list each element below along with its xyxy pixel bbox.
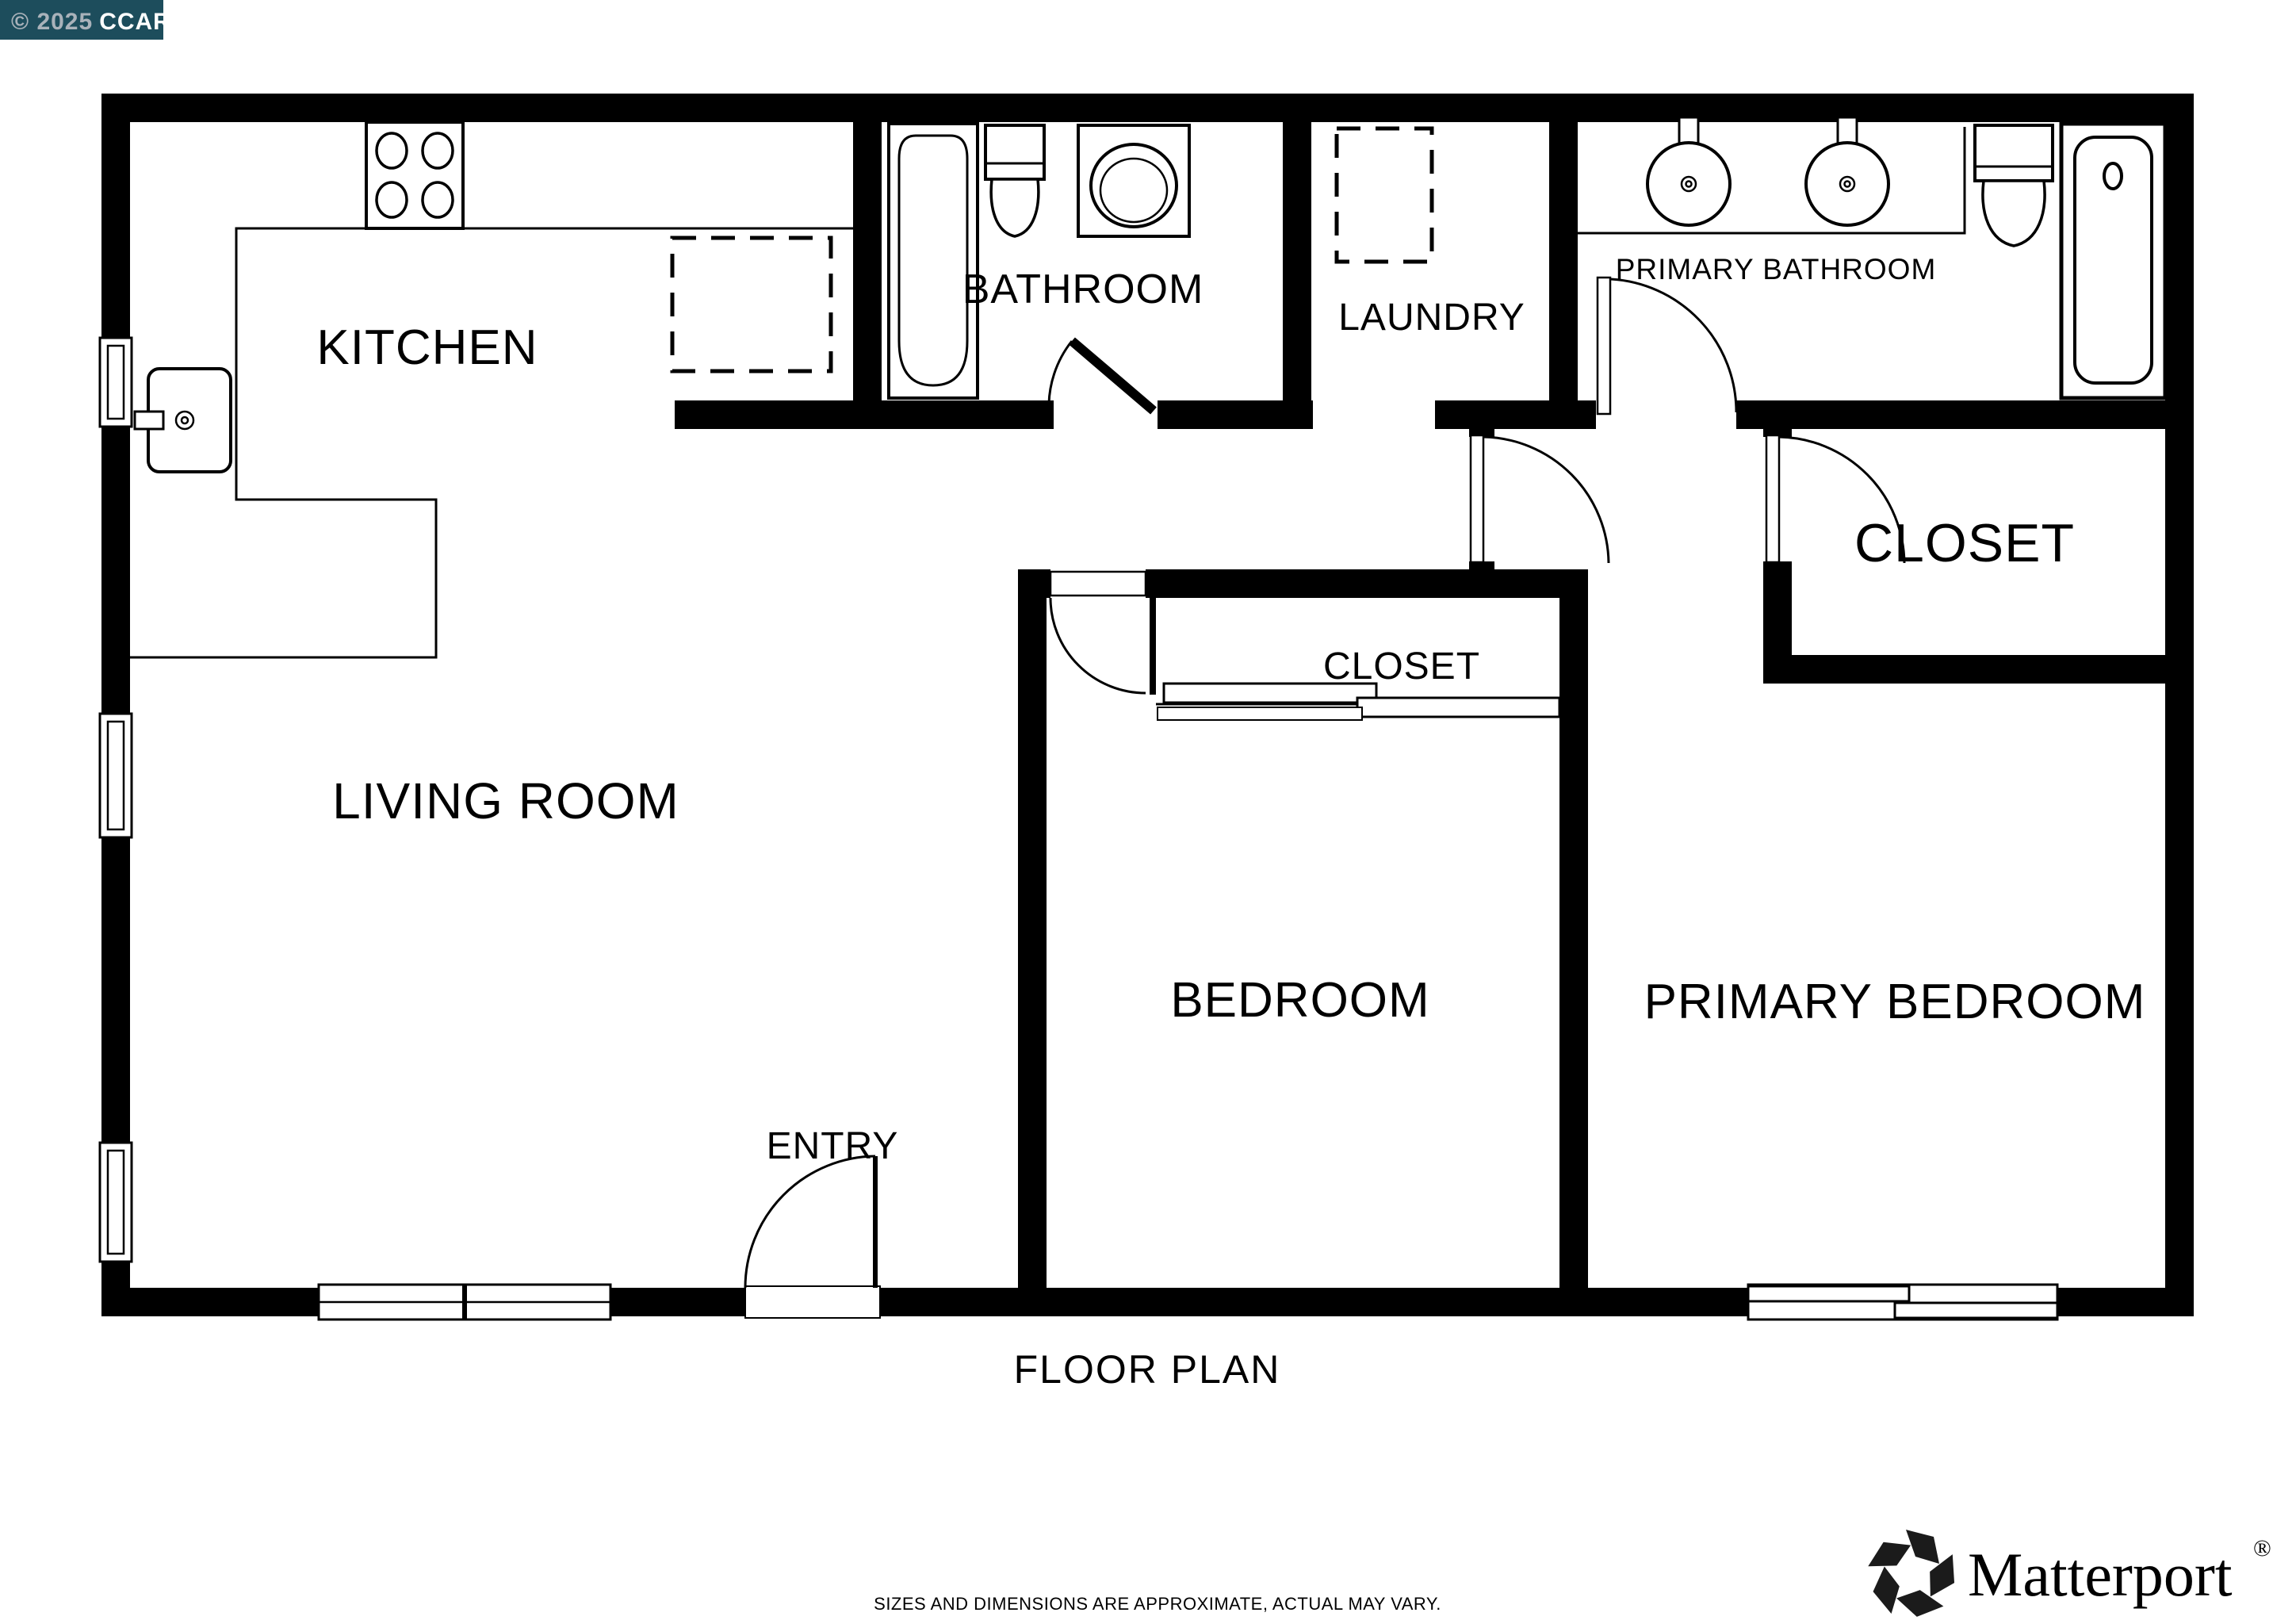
registered-trademark: ® <box>2253 1535 2271 1561</box>
closet-sliding-doors-icon <box>1156 684 1559 720</box>
living-room: LIVING ROOM ENTRY <box>319 772 898 1319</box>
wall-closet-bottom <box>1763 655 2194 684</box>
hall-door-arc <box>1483 437 1609 563</box>
vanity-counter <box>1578 127 1965 233</box>
bathtub-icon <box>889 124 978 398</box>
living-room-label: LIVING ROOM <box>332 772 679 829</box>
bedroom-door <box>1050 572 1146 693</box>
wall-bedroom-primary-divider <box>1559 569 1588 1288</box>
bathroom-door-leaf <box>1072 341 1154 411</box>
wall-laundry-bottom <box>1435 400 1596 429</box>
primary-bathroom-label: PRIMARY BATHROOM <box>1616 253 1937 285</box>
kitchen-sink-icon <box>135 369 231 472</box>
disclaimer-text: SIZES AND DIMENSIONS ARE APPROXIMATE, AC… <box>874 1594 1441 1614</box>
window-kitchen <box>100 338 132 427</box>
primary-bathroom-door-leaf <box>1598 278 1610 414</box>
laundry-label: LAUNDRY <box>1338 297 1525 339</box>
primary-sink-left-icon <box>1647 117 1730 225</box>
bathroom-door <box>1049 341 1154 411</box>
bedroom-door-leaf <box>1050 572 1146 596</box>
entry-door-arc <box>745 1156 875 1288</box>
bedroom-label: BEDROOM <box>1170 973 1429 1028</box>
wall-bathroom-bottom-right <box>1158 400 1313 429</box>
window-living-lower <box>100 1143 132 1262</box>
hall-door <box>1471 435 1609 563</box>
bedroom-door-arc <box>1050 598 1146 693</box>
hall-door-leaf <box>1471 435 1483 562</box>
living-room-window <box>319 1285 610 1319</box>
bedroom: CLOSET BEDROOM <box>1050 572 1559 1028</box>
wall-bathroom-laundry <box>1283 122 1311 429</box>
toilet-icon <box>985 125 1044 236</box>
primary-closet-label: CLOSET <box>1854 513 2075 573</box>
matterport-mark-icon <box>1865 1530 1963 1624</box>
wall-closet-door-stub-bottom <box>1763 561 1792 655</box>
washer-dryer-icon <box>1337 128 1432 262</box>
matterport-wordmark: Matterport <box>1968 1540 2233 1609</box>
primary-bedroom: PRIMARY BEDROOM <box>1644 975 2146 1319</box>
primary-bathroom-door <box>1598 278 1736 414</box>
wall-laundry-primary-bath <box>1549 122 1578 429</box>
kitchen: KITCHEN <box>130 122 853 657</box>
matterport-logo: Matterport ® <box>1865 1530 2271 1624</box>
floor-plan-page: KITCHEN BATHROOM LAUNDRY <box>0 0 2296 1624</box>
bathroom: BATHROOM <box>889 124 1203 411</box>
entry-label: ENTRY <box>767 1125 899 1167</box>
shower-icon <box>2061 124 2165 398</box>
entry-door-opening <box>745 1286 880 1318</box>
bathroom-door-arc <box>1049 341 1072 411</box>
badge-text: © 2025CCAR <box>11 9 171 35</box>
wall-bedroom-left <box>1018 569 1047 1288</box>
bathroom-sink-icon <box>1078 125 1189 236</box>
stove-icon <box>366 122 463 228</box>
primary-closet: CLOSET <box>1766 435 2075 573</box>
ccar-badge: © 2025CCAR <box>0 0 171 40</box>
exterior-wall-right <box>2165 94 2194 1316</box>
kitchen-label: KITCHEN <box>316 320 538 375</box>
laundry: LAUNDRY <box>1337 128 1525 339</box>
wall-bathroom-left <box>853 122 882 429</box>
wall-bedroom-closet-left <box>1150 598 1156 695</box>
entry-door <box>745 1156 880 1318</box>
primary-closet-door-leaf <box>1766 435 1779 562</box>
laundry-opening <box>1313 399 1435 431</box>
primary-sink-right-icon <box>1806 117 1888 225</box>
primary-bedroom-window <box>1748 1285 2057 1319</box>
kitchen-counter-outline <box>130 228 853 657</box>
bedroom-closet-label: CLOSET <box>1323 645 1480 688</box>
exterior-wall-top <box>101 94 2194 122</box>
wall-primary-bath-bottom <box>1736 400 2194 429</box>
dishwasher-icon <box>672 238 831 371</box>
floor-plan-title: FLOOR PLAN <box>1014 1347 1281 1392</box>
primary-bathroom-door-arc <box>1610 279 1736 412</box>
primary-bathroom: PRIMARY BATHROOM <box>1578 117 2165 414</box>
exterior-wall-left <box>101 94 130 1316</box>
bathroom-label: BATHROOM <box>962 266 1204 312</box>
window-living-upper <box>100 714 132 837</box>
primary-toilet-icon <box>1975 125 2053 246</box>
primary-bedroom-label: PRIMARY BEDROOM <box>1644 975 2146 1029</box>
wall-bedroom-top-right <box>1146 569 1588 598</box>
wall-bathroom-bottom-left <box>675 400 1054 429</box>
